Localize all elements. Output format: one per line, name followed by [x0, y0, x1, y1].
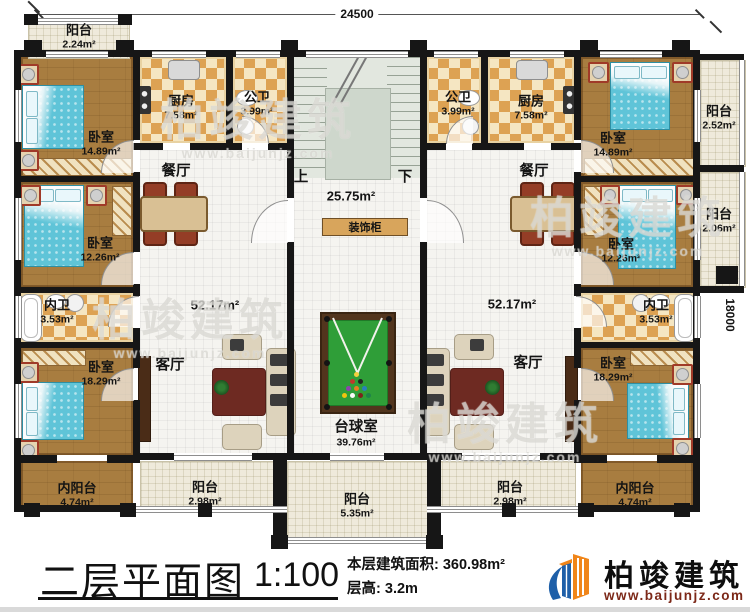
- room-label-stairhall-area: 25.75m²: [327, 190, 375, 205]
- room-label-neiyang-r: 内阳台4.74m²: [615, 482, 654, 509]
- balcony-railing: [287, 537, 427, 544]
- billiard-ball-icon: [342, 393, 347, 398]
- billiard-ball-icon: [350, 393, 355, 398]
- room-label-dining-r: 餐厅: [520, 164, 549, 181]
- wall: [133, 57, 140, 140]
- room-label-bath-l: 公卫3.99m²: [240, 91, 273, 118]
- sheet-bottom-strip: [0, 607, 750, 612]
- stair-down-label: 下: [398, 170, 413, 187]
- plan-scale: 1:100: [254, 556, 339, 595]
- wall: [540, 453, 574, 460]
- room-label-balcony-mr: 阳台2.06m²: [702, 208, 735, 235]
- room-label-bedroom2-r: 卧室12.26m²: [601, 238, 640, 265]
- room-label-hall-l-area: 52.17m²: [191, 299, 239, 314]
- room-label-billiard: 台球室39.76m²: [334, 420, 378, 449]
- wall: [657, 455, 700, 463]
- billiard-ball-icon: [350, 379, 355, 384]
- room-label-bedroom1-l: 卧室14.89m²: [81, 131, 120, 158]
- column-post: [116, 40, 134, 57]
- wall: [190, 143, 242, 150]
- column-post: [578, 503, 594, 517]
- window: [306, 51, 408, 58]
- corner-mark: [710, 21, 722, 33]
- wall: [273, 455, 287, 539]
- window: [694, 384, 701, 438]
- floor-height-text: 层高: 3.2m: [347, 577, 418, 598]
- room-label-hall-r-area: 52.17m²: [488, 298, 536, 313]
- wall: [700, 165, 744, 172]
- column-post: [426, 535, 443, 549]
- wall: [481, 57, 488, 143]
- wall: [226, 57, 233, 143]
- column-post: [118, 14, 132, 25]
- nightstand-icon: [18, 150, 39, 171]
- billiard-ball-icon: [358, 393, 363, 398]
- balcony-railing: [739, 60, 745, 165]
- column-post: [672, 40, 690, 57]
- column-post: [271, 535, 288, 549]
- room-label-dining-l: 餐厅: [162, 164, 191, 181]
- window: [694, 90, 701, 142]
- wall: [133, 328, 140, 368]
- dimension-width: 24500: [335, 7, 378, 21]
- wall: [551, 143, 581, 150]
- column-post: [410, 40, 427, 57]
- bed-icon: [22, 85, 84, 149]
- nightstand-icon: [18, 64, 39, 85]
- title-underline: [38, 597, 338, 600]
- sofa-pillow-icon: [230, 339, 244, 351]
- sofa-pillow-icon: [425, 374, 444, 386]
- nightstand-icon: [672, 62, 693, 83]
- room-label-bath-r: 公卫3.99m²: [441, 91, 474, 118]
- stair-landing: [325, 88, 391, 180]
- window: [15, 90, 22, 142]
- room-label-kitchen-l: 厨房7.58m²: [164, 95, 197, 122]
- room-label-balcony-br: 阳台2.98m²: [493, 481, 526, 508]
- column-post: [281, 40, 298, 57]
- kitchen-sink-icon: [516, 60, 548, 80]
- column-post: [716, 266, 738, 284]
- nightstand-icon: [672, 364, 693, 385]
- decorative-cabinet: 装饰柜: [322, 218, 408, 236]
- column-post: [24, 40, 42, 57]
- sofa-pillow-icon: [425, 354, 444, 366]
- wall: [574, 57, 581, 140]
- wall: [427, 453, 462, 460]
- window: [15, 384, 22, 438]
- wall: [268, 143, 294, 150]
- dining-table-icon: [510, 196, 578, 232]
- window: [236, 51, 280, 58]
- window: [694, 296, 701, 338]
- stair-treads: [387, 57, 420, 174]
- wall: [107, 455, 140, 463]
- wall: [14, 287, 140, 293]
- room-label-living-l: 客厅: [156, 358, 185, 375]
- nightstand-icon: [20, 185, 41, 206]
- window: [694, 198, 701, 260]
- billiard-ball-icon: [346, 386, 351, 391]
- wall: [287, 453, 330, 460]
- wall: [420, 242, 427, 460]
- wall: [574, 342, 700, 348]
- billiard-ball-icon: [366, 393, 371, 398]
- room-label-bedroom1-r: 卧室14.89m²: [593, 132, 632, 159]
- wall: [700, 54, 744, 60]
- nightstand-icon: [600, 185, 620, 205]
- wall: [574, 400, 581, 455]
- nightstand-icon: [588, 62, 609, 83]
- wall: [14, 176, 133, 182]
- wall: [133, 400, 140, 455]
- room-label-bedroom3-l: 卧室18.29m²: [81, 361, 120, 388]
- room-label-neiwei-r: 内卫3.53m²: [639, 299, 672, 326]
- sliding-door: [174, 455, 252, 461]
- billiard-ball-icon: [362, 386, 367, 391]
- window: [510, 51, 564, 58]
- wall: [252, 453, 287, 460]
- dining-table-icon: [140, 196, 208, 232]
- floor-area-text: 本层建筑面积: 360.98m²: [347, 553, 505, 574]
- room-label-balcony-tl: 阳台2.24m²: [62, 24, 95, 51]
- pool-table-icon: [320, 312, 396, 414]
- armchair-icon: [454, 424, 494, 450]
- window: [15, 296, 22, 338]
- column-post: [24, 503, 40, 517]
- wall: [133, 172, 140, 252]
- bed-icon: [627, 383, 689, 439]
- wall: [574, 455, 607, 463]
- room-label-bedroom2-l: 卧室12.26m²: [80, 237, 119, 264]
- wall: [427, 455, 441, 539]
- wall: [574, 172, 581, 252]
- stair-treads: [294, 68, 327, 174]
- plant-icon: [485, 380, 500, 395]
- billiard-ball-icon: [354, 386, 359, 391]
- window: [152, 51, 206, 58]
- sliding-door: [462, 455, 540, 461]
- sliding-door: [330, 455, 384, 461]
- bed-icon: [610, 62, 670, 130]
- balcony-railing: [739, 172, 745, 286]
- wall: [420, 57, 427, 198]
- dimension-height: 18000: [723, 293, 737, 336]
- bathtub-icon: [20, 294, 42, 342]
- nightstand-icon: [86, 185, 107, 206]
- sofa-pillow-icon: [470, 339, 484, 351]
- wall: [574, 328, 581, 368]
- wall: [472, 143, 524, 150]
- wall: [14, 342, 140, 348]
- wall: [140, 453, 174, 460]
- room-label-neiyang-l: 内阳台4.74m²: [57, 482, 96, 509]
- wall: [420, 143, 446, 150]
- billiard-ball-icon: [354, 372, 359, 377]
- bed-icon: [22, 382, 84, 440]
- wardrobe-icon: [112, 186, 132, 236]
- room-label-balcony-tr: 阳台2.52m²: [702, 105, 735, 132]
- room-label-balcony-bc: 阳台5.35m²: [340, 493, 373, 520]
- billiard-ball-icon: [358, 379, 363, 384]
- armchair-icon: [222, 424, 262, 450]
- kitchen-sink-icon: [168, 60, 200, 80]
- room-label-bedroom3-r: 卧室18.29m²: [593, 357, 632, 384]
- column-post: [120, 503, 136, 517]
- wall: [574, 287, 700, 293]
- window: [600, 51, 662, 58]
- window: [46, 51, 108, 58]
- floor-plan-sheet: 装饰柜 阳台2.24m² 卧室14.89m² 厨房7.58m² 公卫3.99m²…: [0, 0, 750, 612]
- stair-up-label: 上: [294, 170, 309, 187]
- wall: [700, 286, 744, 293]
- room-label-neiwei-l: 内卫3.53m²: [40, 299, 73, 326]
- nightstand-icon: [18, 362, 39, 383]
- wall: [384, 453, 427, 460]
- brand-url: www.baijunjz.com: [604, 588, 745, 603]
- window: [15, 198, 22, 260]
- room-label-balcony-bl: 阳台2.98m²: [188, 481, 221, 508]
- wall: [287, 242, 294, 460]
- sofa-pillow-icon: [425, 394, 444, 406]
- column-post: [674, 503, 690, 517]
- wall: [133, 143, 163, 150]
- room-label-living-r: 客厅: [514, 356, 543, 373]
- window: [434, 51, 478, 58]
- wall: [581, 176, 700, 182]
- corner-mark: [28, 1, 40, 13]
- wall: [14, 455, 57, 463]
- column-post: [580, 40, 598, 57]
- room-label-kitchen-r: 厨房7.58m²: [514, 95, 547, 122]
- column-post: [24, 14, 38, 25]
- plant-icon: [214, 380, 229, 395]
- brand-logo-icon: [543, 550, 601, 606]
